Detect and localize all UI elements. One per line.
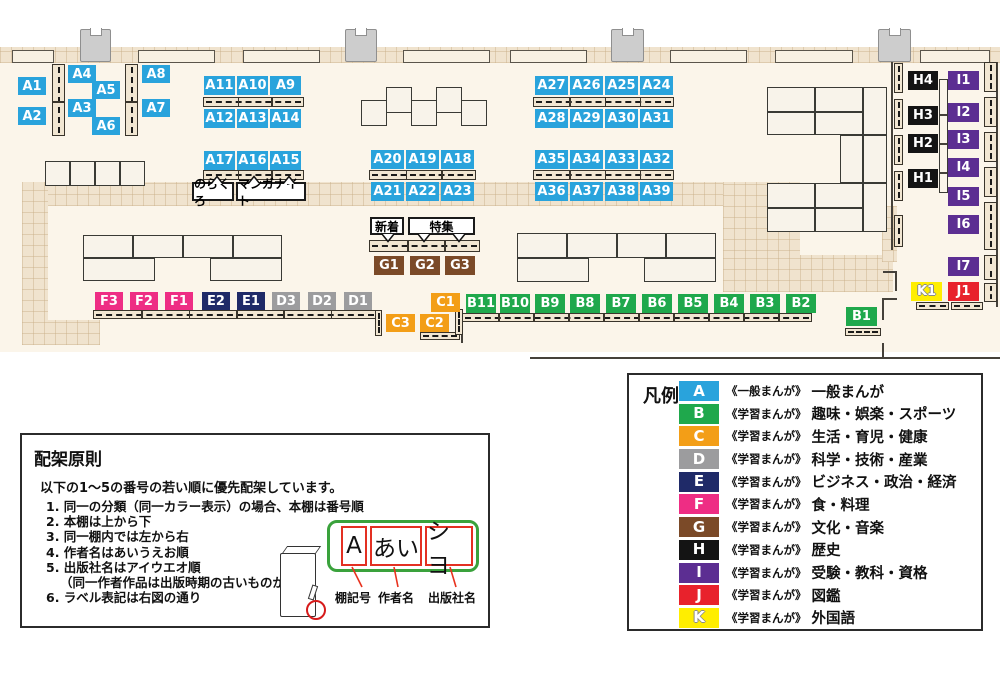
legend-row-G: G《学習まんが》文化・音楽 [679, 517, 977, 537]
reading-table [411, 100, 437, 126]
pillar-notch [889, 28, 901, 36]
legend-row-K: K《学習まんが》外国語 [679, 608, 977, 628]
pillar-notch [622, 28, 634, 36]
shelf-divider [406, 171, 408, 179]
reading-table [617, 233, 666, 258]
shelf-badge-A12: A12 [204, 109, 235, 128]
shelf-divider [53, 101, 64, 103]
legend-badge-G: G [679, 517, 719, 537]
bookshelf [369, 170, 476, 180]
shelf-dash [990, 170, 992, 194]
reading-table [361, 100, 387, 126]
shelf-badge-A24: A24 [640, 76, 673, 95]
shelf-badge-F3: F3 [95, 292, 123, 310]
legend-series: 《学習まんが》 [726, 587, 807, 603]
principle-rule: 1. 同一の分類（同一カラー表示）の場合、本棚は番号順 [46, 499, 364, 514]
annotation-publisher: 出版社名 [428, 589, 476, 606]
bookshelf-vertical [984, 167, 997, 197]
shelf-divider [283, 311, 285, 318]
shelf-divider [498, 314, 500, 321]
shelf-divider [605, 171, 607, 179]
shelf-badge-J1: J1 [948, 282, 979, 301]
bookshelf-vertical [984, 62, 997, 92]
legend-category-label: 生活・育児・健康 [812, 426, 928, 447]
bookshelf-vertical [984, 97, 997, 127]
bookshelf-vertical [984, 132, 997, 162]
shelf-divider [569, 98, 571, 106]
wall [895, 271, 897, 291]
shelf-badge-A10: A10 [237, 76, 268, 95]
reading-table [767, 208, 815, 232]
shelf-badge-I2: I2 [948, 103, 979, 122]
area-label-norakuro: のらくろ [192, 182, 234, 201]
shelf-badge-D3: D3 [272, 292, 300, 310]
shelf-badge-A18: A18 [441, 150, 474, 169]
reading-table [815, 112, 863, 135]
bookshelf-vertical [894, 215, 903, 247]
reading-table [567, 233, 617, 258]
shelf-divider [533, 314, 535, 321]
shelf-divider [708, 314, 710, 321]
page: のらくろマンガナイト新着特集A1A2A3A4A5A6A7A8A9A10A11A1… [0, 0, 1000, 700]
shelf-badge-A27: A27 [535, 76, 568, 95]
shelf-badge-B3: B3 [750, 294, 780, 313]
reading-table [517, 233, 567, 258]
reading-table [120, 161, 145, 186]
shelf-divider [141, 311, 143, 318]
legend-badge-K: K [679, 608, 719, 628]
shelf-badge-A19: A19 [406, 150, 439, 169]
shelf-badge-G3: G3 [445, 256, 475, 275]
principles-title: 配架原則 [34, 445, 102, 470]
shelf-badge-H3: H3 [908, 106, 938, 125]
shelf-badge-A9: A9 [270, 76, 301, 95]
shelf-divider [743, 314, 745, 321]
shelf-badge-A8: A8 [142, 65, 170, 83]
reading-table [815, 208, 863, 232]
shelf-divider [778, 314, 780, 321]
legend-category-label: 食・料理 [812, 494, 870, 515]
reading-table [644, 258, 716, 282]
legend-series: 《学習まんが》 [726, 406, 807, 422]
legend-category-label: 科学・技術・産業 [812, 449, 928, 470]
shelf-dash [990, 286, 992, 299]
reading-table [83, 235, 133, 258]
pillar [878, 29, 911, 62]
legend-badge-H: H [679, 540, 719, 560]
bookshelf [462, 313, 812, 322]
bookshelf [533, 97, 674, 107]
legend-series: 《学習まんが》 [726, 610, 807, 626]
shelf-badge-A7: A7 [142, 99, 170, 117]
shelf-badge-H1: H1 [908, 169, 938, 188]
pillar-notch [355, 28, 367, 36]
shelf-divider [238, 98, 240, 106]
legend-row-B: B《学習まんが》趣味・娯楽・スポーツ [679, 404, 977, 424]
reading-table [70, 161, 95, 186]
reading-table [863, 87, 887, 135]
walkway [22, 320, 100, 345]
shelf-badge-A30: A30 [605, 109, 638, 128]
label-author: あい [370, 526, 422, 566]
shelf-badge-A16: A16 [237, 151, 268, 170]
shelf-dash [848, 331, 878, 333]
legend-row-C: C《学習まんが》生活・育児・健康 [679, 426, 977, 446]
shelf-badge-A22: A22 [406, 182, 439, 201]
shelf-badge-G1: G1 [374, 256, 404, 275]
legend-category-label: ビジネス・政治・経済 [812, 471, 957, 492]
shelf-badge-E1: E1 [237, 292, 265, 310]
legend-category-label: 受験・教科・資格 [812, 562, 928, 583]
shelf-dash [58, 67, 60, 133]
shelf-badge-I4: I4 [948, 158, 979, 177]
legend-series: 《学習まんが》 [726, 519, 807, 535]
pointer-icon [417, 234, 431, 243]
area-label-manga_knight: マンガナイト [236, 182, 306, 201]
legend-series: 《学習まんが》 [726, 496, 807, 512]
legend-badge-J: J [679, 585, 719, 605]
legend-row-F: F《学習まんが》食・料理 [679, 494, 977, 514]
legend-badge-B: B [679, 404, 719, 424]
shelf-dash [990, 205, 992, 247]
shelf-badge-A39: A39 [640, 182, 673, 201]
pointer-icon [247, 175, 261, 184]
shelf-badge-A17: A17 [204, 151, 235, 170]
pillar-notch [90, 28, 102, 36]
shelf-connector [939, 79, 948, 193]
shelf-badge-A28: A28 [535, 109, 568, 128]
shelf-badge-I1: I1 [948, 71, 979, 90]
shelf-dash [990, 100, 992, 124]
shelf-dash [898, 66, 900, 90]
shelf-badge-D1: D1 [344, 292, 372, 310]
shelf-badge-A25: A25 [605, 76, 638, 95]
area-label-new_arrivals: 新着 [370, 217, 404, 235]
shelf-dash [898, 102, 900, 126]
legend-category-label: 外国語 [812, 607, 856, 628]
bookshelf [533, 170, 674, 180]
shelf-badge-C2: C2 [420, 314, 449, 332]
legend-rows: A《一般まんが》一般まんがB《学習まんが》趣味・娯楽・スポーツC《学習まんが》生… [679, 381, 977, 628]
legend-badge-D: D [679, 449, 719, 469]
bookshelf [916, 302, 949, 310]
shelf-badge-I5: I5 [948, 187, 979, 206]
shelf-dash [372, 174, 473, 176]
shelf-dash [990, 135, 992, 159]
shelf-dash [954, 305, 980, 307]
shelf-badge-B2: B2 [786, 294, 816, 313]
shelf-badge-C1: C1 [431, 293, 460, 312]
shelf-badge-G2: G2 [410, 256, 440, 275]
shelf-badge-B4: B4 [714, 294, 744, 313]
principle-rule: 3. 同一棚内では左から右 [46, 529, 364, 544]
shelf-badge-A21: A21 [371, 182, 404, 201]
reading-table [386, 87, 412, 113]
bookshelf-vertical [984, 255, 997, 280]
label-highlight-circle-icon [306, 600, 326, 620]
floor-map: のらくろマンガナイト新着特集A1A2A3A4A5A6A7A8A9A10A11A1… [0, 0, 1000, 370]
legend-badge-I: I [679, 563, 719, 583]
shelf-divider [569, 171, 571, 179]
shelf-dash [378, 313, 380, 333]
shelf-badge-I6: I6 [948, 215, 979, 234]
principle-rule: 2. 本棚は上から下 [46, 514, 364, 529]
shelf-badge-A33: A33 [605, 150, 638, 169]
shelf-badge-K1: K1 [911, 282, 942, 301]
shelf-badge-I3: I3 [948, 130, 979, 149]
shelf-divider [126, 101, 137, 103]
bookshelf-vertical [894, 135, 903, 165]
shelf-divider [603, 314, 605, 321]
legend-box: 凡例 A《一般まんが》一般まんがB《学習まんが》趣味・娯楽・スポーツC《学習まん… [627, 373, 983, 631]
reading-table [95, 161, 120, 186]
legend-series: 《学習まんが》 [726, 451, 807, 467]
shelf-badge-B7: B7 [606, 294, 636, 313]
reading-table [767, 112, 815, 135]
shelf-dash [96, 314, 374, 316]
reading-table [840, 135, 863, 183]
reading-table [517, 258, 589, 282]
shelf-divider [640, 171, 642, 179]
reading-table [767, 87, 815, 112]
shelf-dash [423, 335, 457, 337]
annotation-author: 作者名 [378, 589, 414, 606]
reading-table [767, 183, 815, 208]
shelf-badge-A2: A2 [18, 107, 46, 125]
wall-shelf [243, 50, 320, 63]
shelf-divider [407, 241, 409, 251]
label-example: A あい シヨ [327, 520, 479, 572]
shelf-badge-A34: A34 [570, 150, 603, 169]
shelf-dash [372, 245, 477, 247]
label-shelf-code: A [341, 526, 367, 566]
legend-badge-A: A [679, 381, 719, 401]
annotation-shelf-code: 棚記号 [335, 589, 371, 606]
wall-shelf [510, 50, 587, 63]
wall-shelf [12, 50, 54, 63]
shelf-badge-A20: A20 [371, 150, 404, 169]
pointer-icon [452, 234, 466, 243]
wall-shelf [775, 50, 853, 63]
pointer-icon [282, 175, 296, 184]
shelf-badge-A31: A31 [640, 109, 673, 128]
shelf-badge-D2: D2 [308, 292, 336, 310]
legend-title: 凡例 [643, 382, 679, 408]
reading-table [863, 183, 887, 232]
legend-category-label: 趣味・娯楽・スポーツ [812, 403, 957, 424]
legend-row-D: D《学習まんが》科学・技術・産業 [679, 449, 977, 469]
shelf-divider [189, 311, 191, 318]
shelf-badge-B8: B8 [570, 294, 600, 313]
shelf-dash [206, 101, 301, 103]
wall [882, 298, 897, 300]
shelf-badge-A5: A5 [92, 81, 120, 99]
shelf-badge-H2: H2 [908, 134, 938, 153]
shelf-badge-F2: F2 [130, 292, 158, 310]
reading-table [666, 233, 716, 258]
principle-rule: 5. 出版社名はアイウエオ順 [46, 560, 364, 575]
shelf-divider [568, 314, 570, 321]
reading-table [233, 235, 282, 258]
legend-row-J: J《学習まんが》図鑑 [679, 585, 977, 605]
wall [882, 343, 884, 359]
bookshelf-vertical [894, 99, 903, 129]
bookshelf-vertical [52, 64, 65, 136]
shelf-dash [131, 67, 133, 133]
shelf-badge-A38: A38 [605, 182, 638, 201]
reading-table [461, 100, 487, 126]
shelf-dash [898, 174, 900, 198]
bookshelf-vertical [894, 63, 903, 93]
legend-badge-C: C [679, 426, 719, 446]
pillar [80, 29, 111, 62]
shelf-badge-A11: A11 [204, 76, 235, 95]
bookshelf-vertical [455, 309, 463, 335]
bookshelf-vertical [984, 283, 997, 302]
shelf-divider [638, 314, 640, 321]
reading-table [815, 87, 863, 112]
wall [882, 298, 884, 320]
shelf-badge-A3: A3 [68, 99, 96, 117]
shelf-badge-A29: A29 [570, 109, 603, 128]
legend-series: 《学習まんが》 [726, 428, 807, 444]
legend-row-H: H《学習まんが》歴史 [679, 540, 977, 560]
wall [891, 62, 893, 250]
reading-table [815, 183, 863, 208]
wall-shelf [920, 50, 990, 63]
walkway [723, 255, 893, 292]
reading-table [45, 161, 70, 186]
shelf-badge-I7: I7 [948, 257, 979, 276]
legend-series: 《学習まんが》 [726, 474, 807, 490]
shelf-badge-H4: H4 [908, 71, 938, 90]
shelf-badge-A35: A35 [535, 150, 568, 169]
legend-badge-E: E [679, 472, 719, 492]
shelf-dash [465, 317, 809, 319]
bookshelf-vertical [375, 310, 382, 336]
wall-shelf [138, 50, 215, 63]
wall-shelf [403, 50, 490, 63]
shelf-badge-B5: B5 [678, 294, 708, 313]
wall-shelf [670, 50, 747, 63]
shelf-badge-A1: A1 [18, 77, 46, 95]
legend-badge-F: F [679, 494, 719, 514]
bookshelf-vertical [984, 202, 997, 250]
shelf-divider [236, 311, 238, 318]
pointer-icon [210, 175, 224, 184]
legend-category-label: 歴史 [812, 539, 841, 560]
shelf-badge-A13: A13 [237, 109, 268, 128]
shelf-badge-A15: A15 [270, 151, 301, 170]
bookshelf [951, 302, 983, 310]
pointer-icon [381, 234, 395, 243]
legend-series: 《一般まんが》 [726, 383, 807, 399]
legend-row-A: A《一般まんが》一般まんが [679, 381, 977, 401]
shelf-dash [990, 258, 992, 277]
shelf-dash [990, 65, 992, 89]
label-publisher: シヨ [425, 526, 473, 566]
reading-table [436, 87, 462, 113]
shelf-badge-B10: B10 [500, 294, 530, 313]
shelf-dash [919, 305, 946, 307]
shelf-badge-C3: C3 [386, 314, 415, 332]
reading-table [83, 258, 155, 281]
shelf-badge-B6: B6 [642, 294, 672, 313]
shelf-badge-B11: B11 [466, 294, 496, 313]
shelf-badge-E2: E2 [202, 292, 230, 310]
shelf-badge-A14: A14 [270, 109, 301, 128]
bookshelf-vertical [894, 171, 903, 201]
pillar [345, 29, 377, 62]
shelf-badge-B9: B9 [535, 294, 565, 313]
shelf-dash [898, 138, 900, 162]
reading-table [183, 235, 233, 258]
shelf-divider [605, 98, 607, 106]
shelf-dash [536, 101, 671, 103]
shelf-divider [331, 311, 333, 318]
shelf-badge-A32: A32 [640, 150, 673, 169]
shelf-badge-A23: A23 [441, 182, 474, 201]
shelf-dash [898, 218, 900, 244]
reading-table [863, 135, 887, 183]
shelf-divider [271, 98, 273, 106]
principles-box: 配架原則 以下の1～5の番号の若い順に優先配架しています。 1. 同一の分類（同… [20, 433, 490, 628]
legend-row-I: I《学習まんが》受験・教科・資格 [679, 563, 977, 583]
shelf-badge-A26: A26 [570, 76, 603, 95]
legend-category-label: 図鑑 [812, 585, 841, 606]
legend-category-label: 文化・音楽 [812, 517, 885, 538]
shelf-divider [640, 98, 642, 106]
shelf-badge-A37: A37 [570, 182, 603, 201]
legend-row-E: E《学習まんが》ビジネス・政治・経済 [679, 472, 977, 492]
reading-table [133, 235, 183, 258]
area-label-feature: 特集 [408, 217, 475, 235]
bookshelf [203, 97, 304, 107]
bookshelf [420, 332, 460, 340]
bookshelf [845, 328, 881, 336]
shelf-badge-B1: B1 [846, 307, 877, 326]
bookshelf [93, 310, 377, 319]
legend-series: 《学習まんが》 [726, 565, 807, 581]
shelf-badge-A6: A6 [92, 117, 120, 135]
shelf-divider [444, 241, 446, 251]
shelf-dash [536, 174, 671, 176]
legend-series: 《学習まんが》 [726, 542, 807, 558]
shelf-badge-A36: A36 [535, 182, 568, 201]
principles-intro: 以下の1～5の番号の若い順に優先配架しています。 [40, 477, 342, 496]
shelf-divider [441, 171, 443, 179]
pillar [611, 29, 644, 62]
legend-category-label: 一般まんが [812, 381, 885, 402]
reading-table [210, 258, 282, 281]
shelf-dash [458, 312, 460, 332]
shelf-divider [673, 314, 675, 321]
bookshelf-vertical [125, 64, 138, 136]
wall [530, 357, 1000, 359]
shelf-badge-F1: F1 [165, 292, 193, 310]
